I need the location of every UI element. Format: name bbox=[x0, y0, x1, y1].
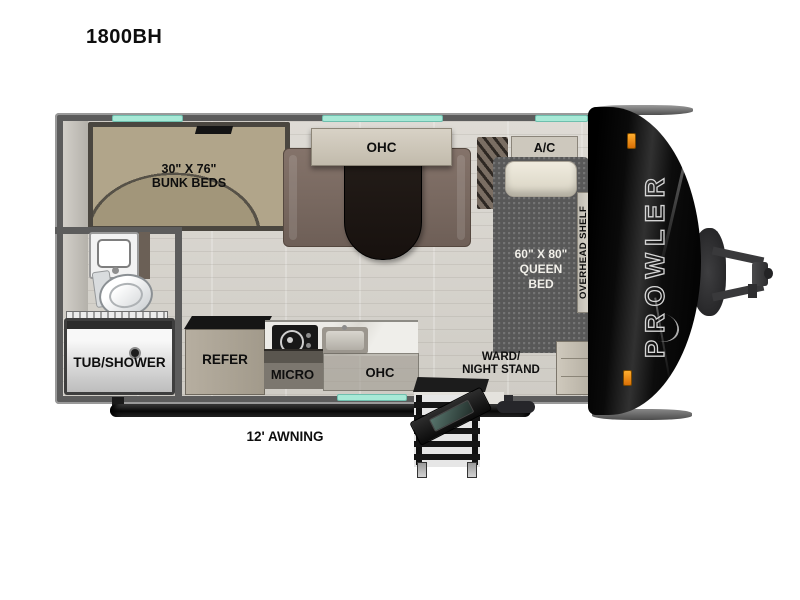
cabinet-line bbox=[561, 376, 588, 377]
kitchen-sink bbox=[322, 327, 368, 354]
bunk-label: 30" X 76" BUNK BEDS bbox=[109, 162, 269, 191]
burner-center bbox=[287, 337, 293, 343]
ac-label: A/C bbox=[512, 141, 577, 155]
ward-line1-text: WARD/ bbox=[448, 351, 554, 364]
toilet-seat bbox=[107, 281, 144, 310]
bed-word-text: BED bbox=[493, 277, 589, 292]
kitchen-faucet bbox=[342, 325, 347, 330]
bed-size-text: 60" X 80" bbox=[493, 247, 589, 262]
bed-label: 60" X 80" QUEEN BED bbox=[493, 247, 589, 292]
step-foot-right bbox=[467, 462, 477, 478]
marker-light-bottom bbox=[623, 370, 632, 386]
tub-shower-label: TUB/SHOWER bbox=[67, 355, 172, 371]
step-rung bbox=[414, 454, 480, 460]
model-title: 1800BH bbox=[86, 26, 162, 49]
bunk-ladder-notch bbox=[195, 126, 233, 134]
bath-wall-right bbox=[175, 227, 182, 396]
microwave: MICRO bbox=[264, 349, 323, 389]
kitchen-ohc-label: OHC bbox=[350, 366, 410, 381]
dinette-ohc-label: OHC bbox=[312, 140, 451, 156]
kitchen-sink-basin bbox=[326, 331, 364, 350]
dinette-table bbox=[344, 152, 422, 260]
cooktop-knob bbox=[306, 333, 311, 338]
hitch-ball-knob bbox=[764, 268, 773, 279]
bunk-name-text: BUNK BEDS bbox=[109, 176, 269, 190]
bed-type-text: QUEEN bbox=[493, 262, 589, 277]
bunk-size-text: 30" X 76" bbox=[109, 162, 269, 176]
bath-sink-basin bbox=[97, 239, 131, 268]
micro-label: MICRO bbox=[264, 368, 321, 383]
bath-cabinet bbox=[139, 232, 150, 279]
ward-line2-text: NIGHT STAND bbox=[448, 364, 554, 377]
kitchen-overhead-cabinet: OHC bbox=[323, 353, 419, 391]
cooktop-knob bbox=[306, 343, 311, 348]
awning-label: 12' AWNING bbox=[200, 429, 370, 445]
refrigerator: REFER bbox=[185, 329, 265, 395]
ward-label: WARD/ NIGHT STAND bbox=[448, 351, 554, 377]
bench-arm-right bbox=[457, 155, 465, 240]
bunk-beds: 30" X 76" BUNK BEDS bbox=[88, 122, 290, 231]
floorplan-page: 1800BH 30" X 76" BUNK BEDS TUB/SHO bbox=[0, 0, 800, 600]
marker-light-top bbox=[627, 133, 636, 149]
tub-edge bbox=[67, 321, 172, 329]
ac-unit: A/C bbox=[511, 136, 578, 159]
dinette-overhead-cabinet: OHC bbox=[311, 128, 452, 166]
tub-shower: TUB/SHOWER bbox=[64, 318, 175, 395]
window-dinette bbox=[322, 115, 443, 122]
refer-label: REFER bbox=[186, 352, 264, 368]
window-kitchen bbox=[337, 394, 407, 401]
brand-logo-text: PROWLER bbox=[640, 151, 682, 379]
step-foot-left bbox=[417, 462, 427, 478]
refer-top-panel bbox=[184, 316, 272, 329]
hitch-foot bbox=[748, 284, 757, 298]
cabinet-line bbox=[561, 358, 588, 359]
window-bunk bbox=[112, 115, 183, 122]
window-bed bbox=[535, 115, 588, 122]
bench-arm-left bbox=[289, 155, 297, 240]
front-wall-strip bbox=[63, 121, 88, 318]
bath-sink-faucet bbox=[112, 267, 119, 274]
grab-handle bbox=[497, 401, 535, 413]
bed-pillow bbox=[505, 161, 577, 197]
